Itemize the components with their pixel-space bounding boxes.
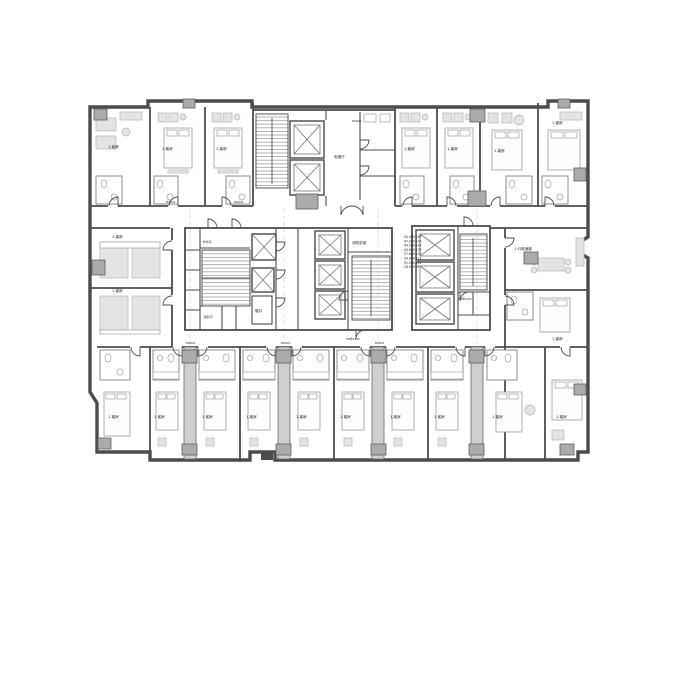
room-label-guest: 1-客房 [390,414,401,419]
room-label-lounge: 1-行政酒廊 [514,246,532,251]
east-elevator-2 [416,262,454,292]
level-entry: 28.000 9F [404,265,420,269]
room-label-guest: 1-客房 [112,288,123,293]
service-shaft-1 [252,234,276,260]
room-label-linen: 布草间 [203,240,212,244]
room-label-fire-lobby: 消防前室 [352,240,367,245]
door-tag: M1021 [186,341,196,345]
passenger-elevator-1 [315,231,345,259]
fire-door-tag: FM甲1021 [458,297,472,301]
room-label-elevator-lobby: 电梯厅 [334,154,345,159]
room-label-guest: 1-客房 [246,414,257,419]
entry-tab [261,452,273,460]
room-label-guest: 1-客房 [216,146,227,151]
room-label-guest: 1-客房 [340,414,351,419]
core-east-stair [460,234,487,290]
door-tag: M1021 [375,341,385,345]
room-label-guest: 1-客房 [112,234,123,239]
floor-plan-page: 电梯厅 M1021 管井 消防前室 FM [0,0,700,674]
fire-door-tag: FM甲1021 [346,337,360,341]
room-label-guest: 1-客房 [434,414,445,419]
floor-plan-drawing: 电梯厅 M1021 管井 消防前室 FM [0,0,700,674]
door-tag: M1021 [166,200,176,204]
room-label-guest: 1-客房 [492,414,503,419]
room-label-guest: 1-客房 [296,414,307,419]
door-tag: M1021 [352,119,362,123]
room-label-guest: 1-客房 [202,414,213,419]
room-label-duct: 管井 [255,308,263,313]
room-label-guest: 1-客房 [552,336,563,341]
room-label-guest: 1-客房 [154,414,165,419]
room-label-guest: 1-客房 [494,148,505,153]
room-label-guest: 1-客房 [162,146,173,151]
door-tag: M1021 [234,200,244,204]
room-label-guest: 1-客房 [108,144,119,149]
level-table: 50.400 16F 47.200 15F 44.000 14F 40.800 … [404,235,422,269]
room-label-guest: 1-客房 [556,414,567,419]
east-elevator-1 [416,230,454,260]
service-shaft-2 [252,268,274,292]
top-core-elevator-2 [290,160,324,195]
room-label-guest: 1-客房 [552,120,563,125]
top-core-elevator-1 [290,121,324,158]
room-label-guest: 1-客房 [404,146,415,151]
room-label-guest: 1-客房 [108,414,119,419]
passenger-elevator-2 [315,261,345,289]
door-tag: M1021 [281,341,291,345]
room-label-guest: 1-客房 [447,146,458,151]
east-elevator-3 [416,294,454,324]
room-label-service: 服务间 [204,315,213,319]
